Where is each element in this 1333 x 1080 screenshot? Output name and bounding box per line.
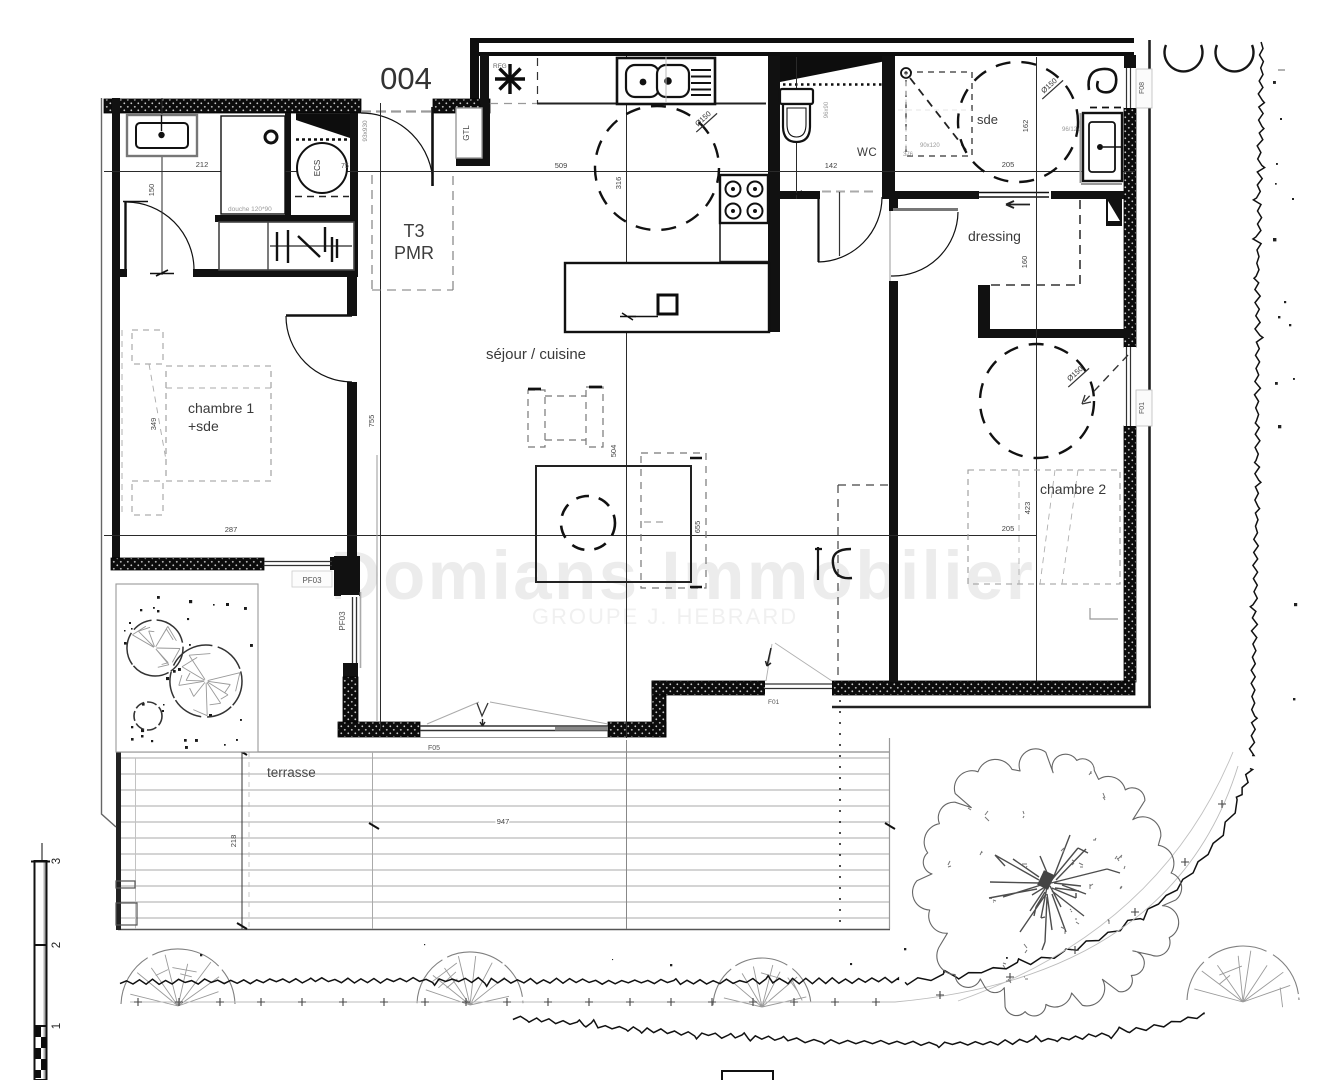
svg-text:504: 504	[609, 445, 618, 458]
svg-text:90x120: 90x120	[920, 143, 940, 149]
svg-text:3: 3	[51, 858, 63, 864]
svg-text:+sde: +sde	[188, 418, 219, 434]
svg-text:sde: sde	[977, 112, 998, 127]
svg-text:F05: F05	[428, 745, 440, 752]
svg-text:287: 287	[225, 525, 238, 534]
svg-text:423: 423	[1023, 502, 1032, 515]
svg-text:PMR: PMR	[394, 243, 434, 263]
svg-text:GTL: GTL	[462, 125, 471, 141]
svg-text:205: 205	[1002, 160, 1015, 169]
svg-text:75: 75	[341, 163, 349, 170]
svg-text:349: 349	[149, 418, 158, 431]
svg-text:004: 004	[380, 61, 432, 96]
svg-text:GROUPE J. HEBRARD: GROUPE J. HEBRARD	[532, 604, 798, 629]
svg-text:142: 142	[825, 161, 838, 170]
svg-text:162: 162	[1021, 120, 1030, 133]
svg-text:218: 218	[229, 835, 238, 848]
svg-text:96x90: 96x90	[824, 101, 830, 118]
svg-text:93x930: 93x930	[362, 120, 369, 142]
svg-text:1: 1	[51, 1023, 63, 1029]
svg-text:212: 212	[196, 160, 209, 169]
svg-text:755: 755	[367, 415, 376, 428]
svg-text:T3: T3	[403, 221, 424, 241]
svg-text:chambre 1: chambre 1	[188, 400, 254, 416]
svg-text:séjour / cuisine: séjour / cuisine	[486, 346, 586, 363]
svg-text:205: 205	[1002, 524, 1015, 533]
svg-text:F01: F01	[768, 699, 780, 706]
svg-text:655: 655	[693, 521, 702, 534]
svg-text:2: 2	[51, 942, 63, 948]
svg-text:F08: F08	[1139, 82, 1146, 94]
svg-text:PF03: PF03	[338, 611, 347, 631]
svg-text:150: 150	[147, 184, 156, 197]
svg-text:PF03: PF03	[302, 576, 322, 585]
svg-text:376: 376	[903, 152, 914, 158]
svg-text:316: 316	[614, 177, 623, 190]
svg-text:509: 509	[555, 161, 568, 170]
svg-text:947: 947	[497, 817, 510, 826]
svg-text:douche 120*90: douche 120*90	[228, 206, 272, 213]
svg-text:WC: WC	[857, 147, 877, 159]
svg-text:Domians Immobilier: Domians Immobilier	[331, 537, 1035, 614]
svg-text:ECS: ECS	[313, 160, 322, 176]
svg-text:terrasse: terrasse	[267, 765, 316, 780]
svg-text:chambre 2: chambre 2	[1040, 481, 1106, 497]
svg-text:dressing: dressing	[968, 228, 1021, 244]
svg-text:F01: F01	[1139, 402, 1146, 414]
svg-text:160: 160	[1020, 256, 1029, 269]
